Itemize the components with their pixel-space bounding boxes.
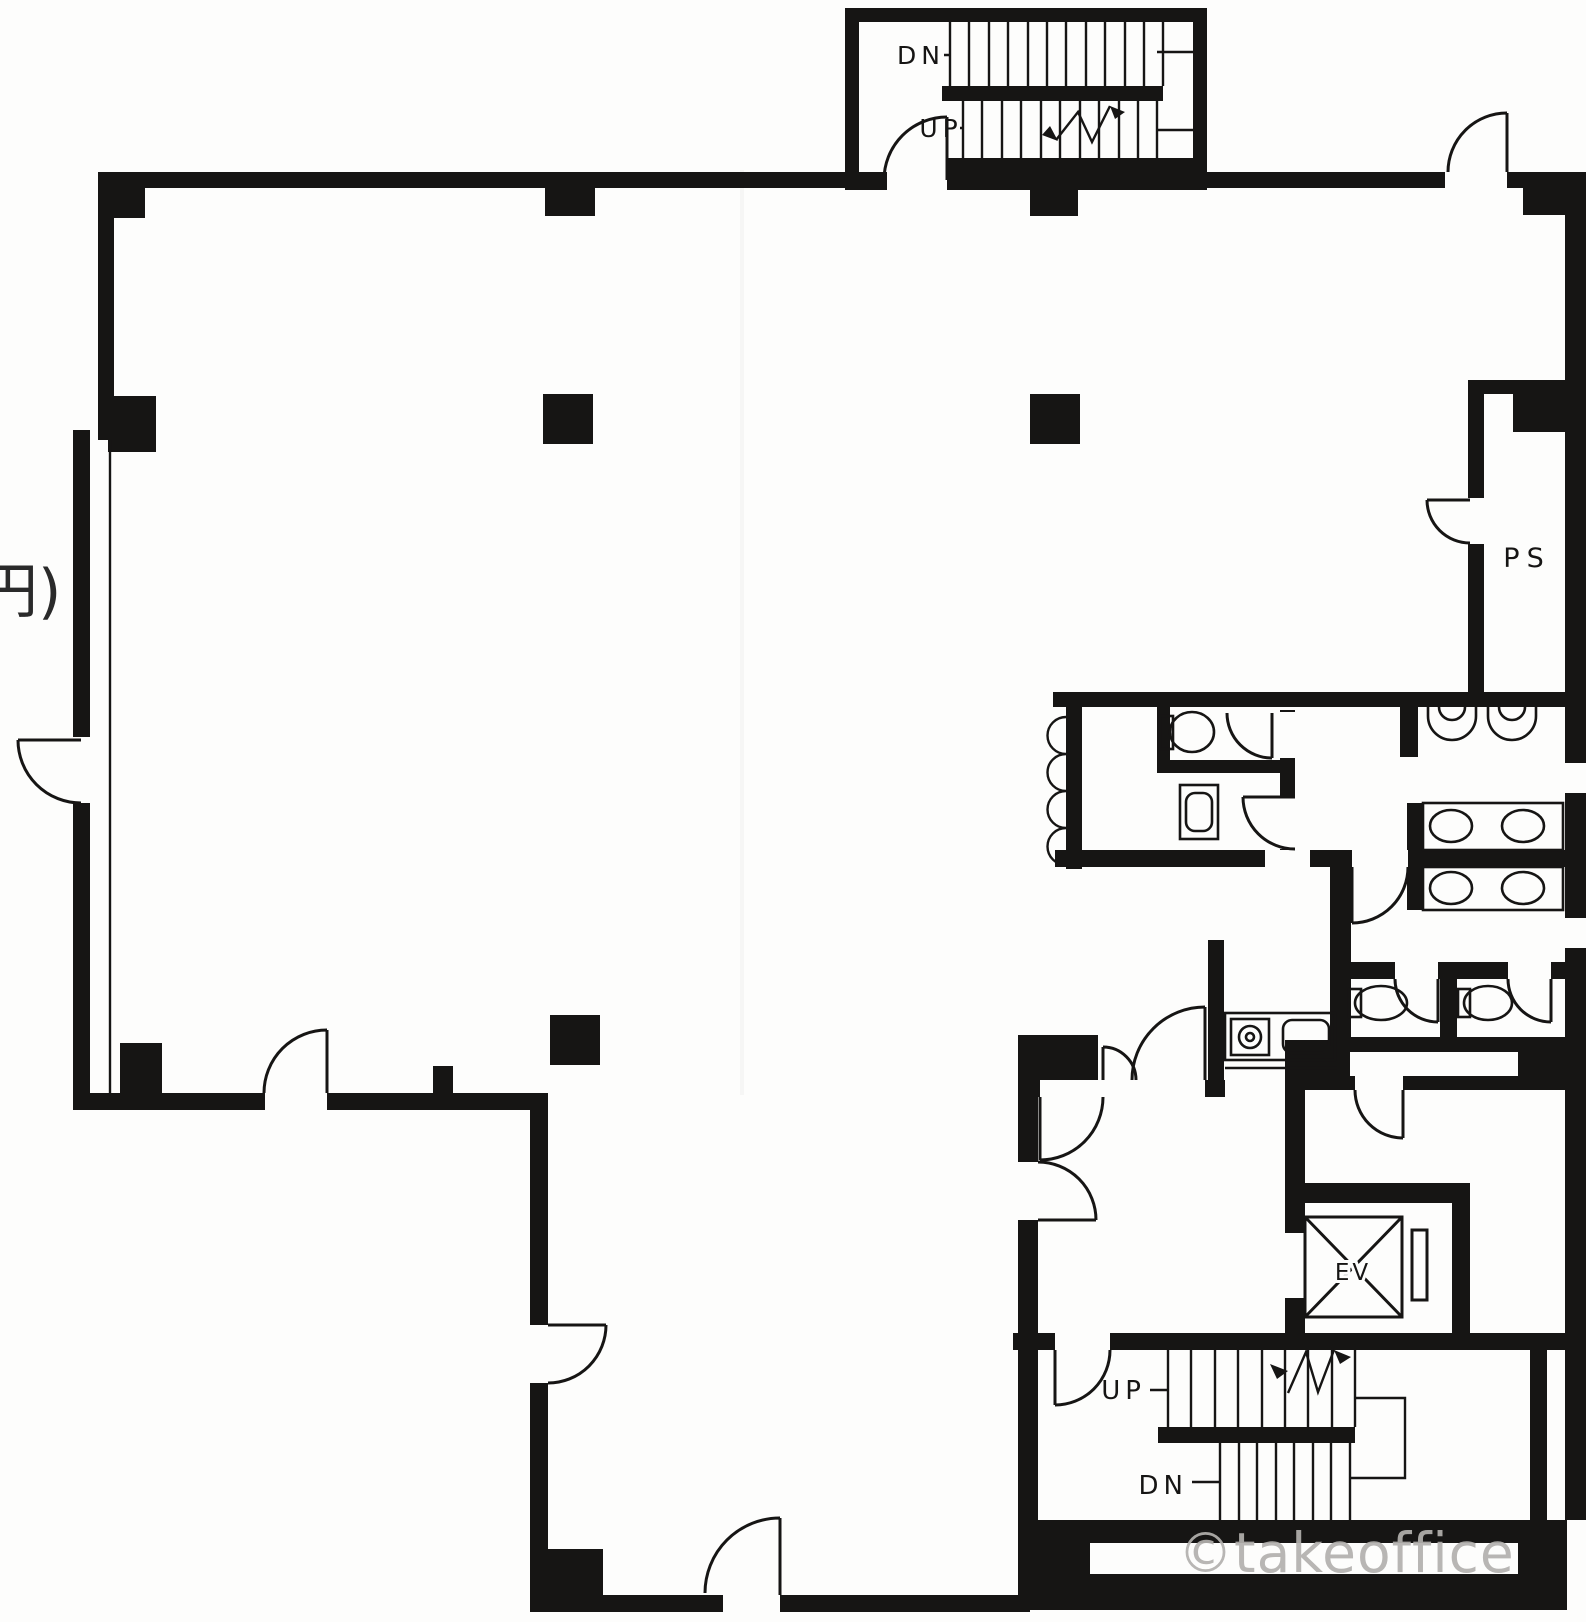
elevator-landing-door bbox=[1285, 1233, 1305, 1298]
pass-through-slot bbox=[1350, 1052, 1518, 1076]
elevator-counterweight bbox=[1412, 1230, 1427, 1300]
washbasin-bowl bbox=[1186, 793, 1212, 831]
basin-icon bbox=[1502, 872, 1544, 904]
break-arrow-icon bbox=[1110, 106, 1125, 119]
door-swing-lobby-b bbox=[1038, 1162, 1096, 1220]
upper-stair-dn-label: DN bbox=[897, 41, 945, 70]
toilet-icon bbox=[1170, 712, 1214, 752]
stair-break-line bbox=[1056, 106, 1110, 142]
lower-staircase: UP DN bbox=[1101, 1350, 1405, 1520]
stair-landing-bar bbox=[1158, 1427, 1355, 1443]
folding-door-scallops bbox=[1048, 717, 1067, 865]
urinal-icon bbox=[1488, 707, 1536, 740]
elevator-label: EV bbox=[1335, 1260, 1371, 1286]
door-swing-kitchenette-large bbox=[1132, 1007, 1205, 1080]
upper-stair-up-label: UP bbox=[919, 114, 962, 143]
stair-treads-lower-flight bbox=[1220, 1443, 1350, 1520]
urinal-icon bbox=[1428, 707, 1476, 740]
toilet-icon bbox=[1349, 986, 1407, 1020]
right-wall-window bbox=[1565, 918, 1586, 948]
right-wall-window bbox=[1565, 763, 1586, 793]
watermark: ©takeoffice bbox=[1178, 1521, 1515, 1585]
break-arrow-icon bbox=[1042, 126, 1058, 141]
door-swing-toilet-room-left bbox=[1352, 867, 1408, 923]
door-swing-lobby-a bbox=[1040, 1097, 1103, 1160]
basin-icon bbox=[1430, 872, 1472, 904]
pipe-shaft-label: PS bbox=[1503, 543, 1550, 574]
stove-icon bbox=[1231, 1019, 1269, 1055]
toilet-icon bbox=[1458, 986, 1512, 1020]
washbasin-counter bbox=[1423, 803, 1563, 850]
stair-treads-upper-flight bbox=[950, 22, 1163, 86]
door-swing-pipe-shaft bbox=[1427, 500, 1470, 543]
break-arrow-icon bbox=[1334, 1350, 1351, 1364]
stair-treads-upper-flight bbox=[1168, 1350, 1355, 1427]
door-swing-left-exit bbox=[18, 740, 81, 803]
door-swing-top-right-exit bbox=[1448, 113, 1507, 172]
basin-icon bbox=[1502, 810, 1544, 842]
door-swing-wc-stall-a bbox=[1395, 979, 1438, 1022]
elevator: EV bbox=[1305, 1217, 1427, 1317]
lower-stair-dn-label: DN bbox=[1139, 1471, 1188, 1501]
door-swing-elevator-hall bbox=[1355, 1090, 1403, 1138]
upper-staircase: DN UP bbox=[897, 22, 1197, 158]
floor-plan-drawing: DN UP UP DN EV bbox=[0, 0, 1586, 1622]
washbasin-counter bbox=[1423, 867, 1563, 910]
stair-break-line bbox=[1288, 1350, 1334, 1393]
door-swing-bottom-middle bbox=[705, 1518, 780, 1595]
lower-stair-up-label: UP bbox=[1101, 1376, 1146, 1406]
stair-landing-bar bbox=[942, 86, 1163, 101]
wall-openings bbox=[73, 172, 1586, 1612]
basin-icon bbox=[1430, 810, 1472, 842]
scan-fold-line bbox=[740, 170, 744, 1095]
door-swing-bottom-left-room bbox=[264, 1030, 327, 1093]
door-swing-lower-left-wing bbox=[548, 1325, 606, 1383]
left-edge-text-fragment: 円) bbox=[0, 557, 61, 627]
floor-plan-page: DN UP UP DN EV bbox=[0, 0, 1586, 1622]
stair-treads-lower-flight bbox=[963, 101, 1157, 158]
door-swing-wc-stall-b bbox=[1508, 979, 1551, 1022]
door-swing-wc-stall-upper bbox=[1227, 713, 1272, 758]
walls bbox=[73, 8, 1586, 1612]
stair-return-outline bbox=[1350, 1398, 1405, 1478]
